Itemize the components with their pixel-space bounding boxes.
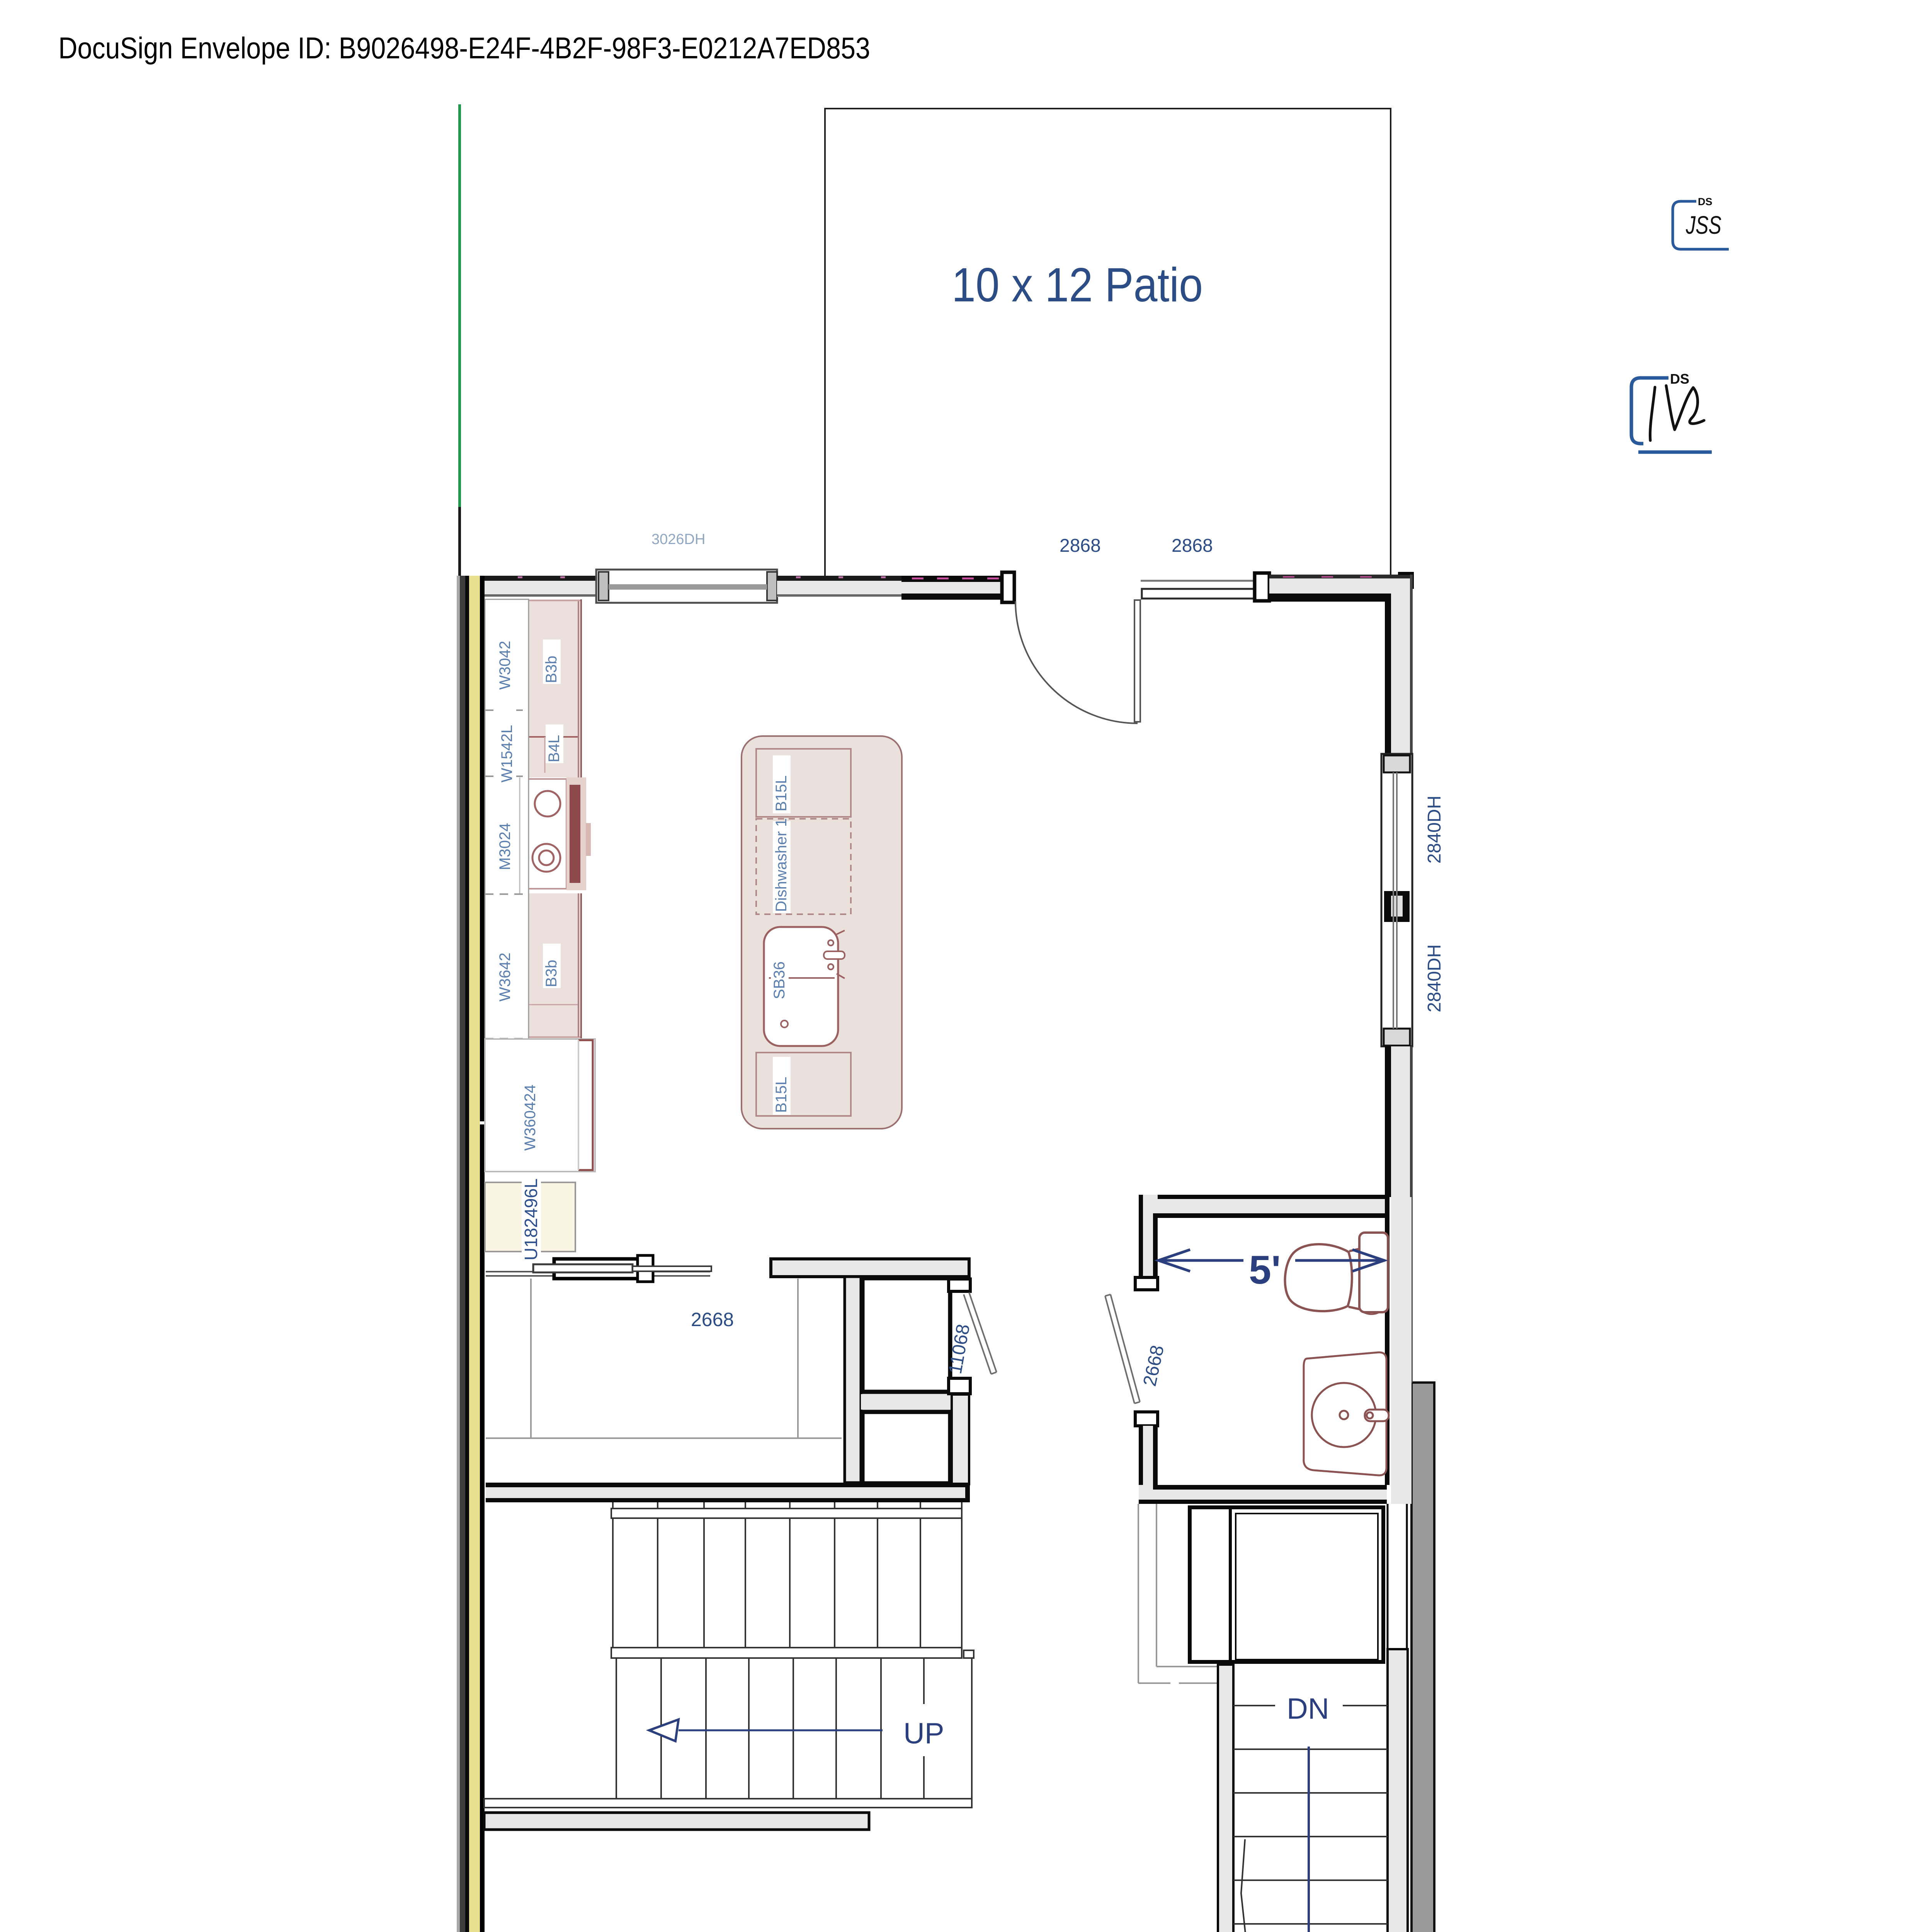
svg-text:B15L: B15L xyxy=(773,776,790,811)
svg-text:DS: DS xyxy=(1698,196,1713,207)
svg-text:10 x 12 Patio: 10 x 12 Patio xyxy=(952,259,1203,312)
svg-text:3026DH: 3026DH xyxy=(651,531,705,548)
svg-text:5': 5' xyxy=(1249,1248,1281,1293)
svg-text:2840DH: 2840DH xyxy=(1424,796,1445,864)
svg-text:DocuSign Envelope ID: B9026498: DocuSign Envelope ID: B9026498-E24F-4B2F… xyxy=(58,31,870,65)
svg-text:B3b: B3b xyxy=(543,656,560,683)
svg-text:B15L: B15L xyxy=(773,1077,790,1113)
svg-text:B4L: B4L xyxy=(546,735,563,762)
svg-text:JSS: JSS xyxy=(1685,211,1721,239)
svg-text:2840DH: 2840DH xyxy=(1424,944,1445,1012)
svg-text:Dishwasher 1: Dishwasher 1 xyxy=(773,818,790,912)
svg-text:UP: UP xyxy=(903,1717,944,1750)
svg-text:W3042: W3042 xyxy=(497,641,514,690)
svg-text:DN: DN xyxy=(1287,1692,1329,1725)
svg-text:B3b: B3b xyxy=(543,960,560,987)
svg-text:W1542L: W1542L xyxy=(498,725,515,782)
svg-text:2868: 2868 xyxy=(1060,536,1101,556)
svg-text:SB36: SB36 xyxy=(771,961,788,999)
svg-text:2668: 2668 xyxy=(691,1309,734,1330)
svg-text:U182496L: U182496L xyxy=(521,1179,541,1260)
svg-text:2868: 2868 xyxy=(1172,536,1213,556)
svg-text:DS: DS xyxy=(1670,371,1689,387)
svg-text:W360424: W360424 xyxy=(522,1085,539,1151)
svg-text:W3642: W3642 xyxy=(497,952,514,1002)
svg-text:M3024: M3024 xyxy=(497,823,514,870)
